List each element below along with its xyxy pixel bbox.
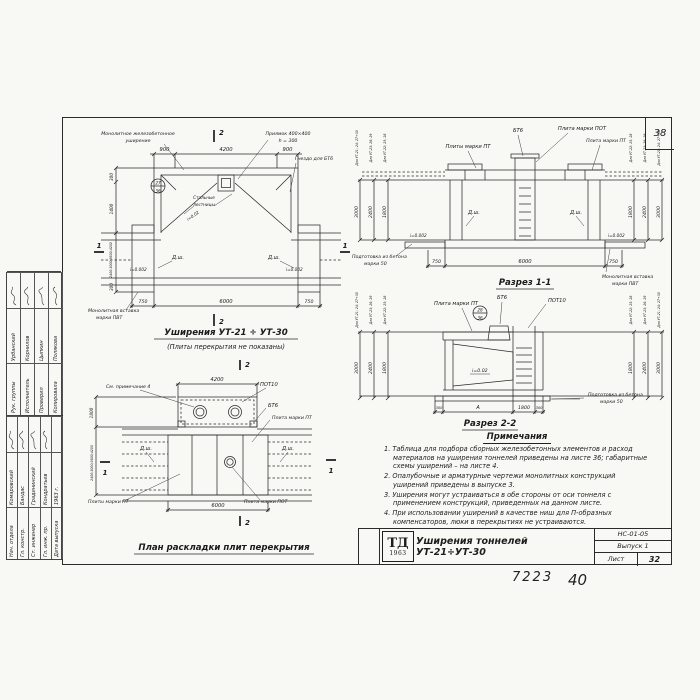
cut-mark-label: 2 [245,519,250,527]
signature-cell [18,416,29,452]
issue-label: Выпуск 1 [595,541,671,553]
signature-icon [30,430,38,450]
joint-label: Д.ш. [281,446,294,452]
slope-label: i=0.002 [410,233,427,238]
name-cell: Урбанский [7,308,21,363]
note-item: 3. Уширения могут устраиваться в обе сто… [384,491,650,508]
detail-mark: 28 [477,308,483,313]
name-cell: Комаровский [7,452,18,507]
signature-cell [7,416,18,452]
sheet-row: Лист 32 [595,553,671,566]
cut-mark-label: 2 [219,129,224,137]
signature-cell [7,272,21,308]
dim-label: 300 [109,173,114,181]
cut-mark-label: 2 [219,318,224,326]
dim-label: 750 [139,299,148,305]
dim-label: А [475,405,480,411]
view-title: План раскладки плит перекрытия [138,543,310,553]
dim-label: 6000 [211,503,225,509]
dim-label: 750 [609,259,618,265]
socket-label: Гнездо для БТ6 [295,156,333,162]
dim-label: 1800 [518,405,530,411]
dim-label: 3000 [354,206,360,218]
title-block-info: НС-01-05 Выпуск 1 Лист 32 [595,529,671,564]
joint-label: Д.ш. [467,210,480,216]
logo-text: ТД [387,537,408,550]
insert-label: марки ПВТ [96,315,123,321]
role-cell: Гл. констр. [18,507,29,559]
bt6-label: БТ6 [513,128,524,134]
plan-widening-drawing: Монолитное железобетонное уширение Приям… [86,120,358,352]
cut-mark-label: 1 [329,467,334,475]
dim-label: 4200 [219,147,233,153]
bt6-label: БТ6 [268,403,279,409]
slope-label: i=0.002 [286,267,303,272]
role-cell: Нач. отдела [7,507,18,559]
dim-label: 2400;3000;3600;4200 [90,445,94,481]
role-cell: Ст. инженер [29,507,40,559]
plate-pt-label: Плита марки ПТ [586,138,627,144]
signature-icon [42,430,50,450]
title-block-spacer [359,529,380,564]
notes-block: Примечания 1. Таблица для подбора сборны… [384,432,650,527]
role-cell: Исполнитель [21,363,35,415]
ladders-label: лестницы [192,202,215,207]
detail-mark: 27 [155,181,161,186]
dim-label: 1800 [382,206,388,218]
signature-cell [29,416,40,452]
note-item: 4. При использовании уширений в качестве… [384,509,650,526]
joint-label: Д.ш. [569,210,582,216]
slope-label: i=0.002 [608,233,625,238]
name-cell: Градининский [29,452,40,507]
dim-label: 6000 [518,259,532,265]
handwritten-number: 7223 [512,570,553,585]
signature-stamp: Нач. отдела Комаровский Гл. констр. Банд… [6,272,62,560]
widening-label: Монолитное железобетонное [101,131,175,137]
name-cell: Кондратьев [41,452,52,507]
view-title: Разрез 2-2 [464,419,517,429]
signature-icon [10,286,18,306]
detail-sheet: 36 [155,189,161,194]
stamp-table: Нач. отдела Комаровский Гл. констр. Банд… [6,272,62,560]
role-cell: Проверил [35,363,49,415]
dim-label: 1800 [628,206,634,218]
dim-label: 2400;3000;3600;4200 [109,242,113,278]
group-label: Для УТ-21; 24; 27÷30 [657,292,661,329]
name-cell: Бандас [18,452,29,507]
group-label: Для УТ-21; 24; 27÷30 [355,130,359,167]
pit-label: h = 300 [279,138,298,144]
signature-icon [24,286,32,306]
group-label: Для УТ-23; 26; 29 [643,134,647,164]
dim-label: 300 [109,283,114,291]
signature-icon [8,430,16,450]
name-cell: Полякова [49,308,63,363]
name-cell: Цыпкин [35,308,49,363]
dim-label: 2400 [368,206,374,218]
plates-pt-label: Плиты марки ПТ [88,499,130,505]
section1-linework [358,133,664,289]
note-item: 1. Таблица для подбора сборных железобет… [384,445,650,471]
group-label: Для УТ-23; 26; 29 [643,296,647,326]
cut-mark-label: 1 [103,469,108,477]
dim-label: 1400 [109,203,114,214]
sheet-number: 32 [638,553,671,566]
signature-cell [41,416,52,452]
dim-label: 1800 [89,407,94,418]
group-label: Для УТ-22; 25; 28 [383,134,387,164]
prep-label: марки 50 [364,261,387,267]
prep-label: марки 50 [600,399,623,405]
role-cell: Гл. инж. пр. [41,507,52,559]
dim-label: 6000 [219,299,233,305]
group-label: Для УТ-22; 25; 28 [629,134,633,164]
dim-label: 750 [305,299,314,305]
dim-label: 300 [536,406,544,410]
joint-label: Д.ш. [139,446,152,452]
dim-label: 900 [283,147,294,153]
stamp-group-approvals: Нач. отдела Комаровский Гл. констр. Банд… [7,415,61,559]
role-cell: Рук. группы [7,363,21,415]
role-cell: Копировала [49,363,63,415]
drawing-title: Уширения тоннелей УТ-21÷УТ-30 [416,529,595,564]
dim-label: 3000 [656,362,662,374]
dim-label: 1800 [628,362,634,374]
plates-pt-label: Плиты марки ПТ [446,144,492,150]
slab-layout-plan-drawing: См. примечание 4 ПОТ10 БТ6 Плита марки П… [82,350,367,562]
plate-pt-label: Плита марки ПТ [272,415,313,421]
document-code: НС-01-05 [595,529,671,541]
group-label: Для УТ-23; 26; 29 [369,134,373,164]
section2-linework [358,302,664,430]
signature-cell [21,272,35,308]
view-title: Уширения УТ-21 ÷ УТ-30 [164,328,287,338]
dim-label: 2400 [642,206,648,218]
logo-year: 1963 [389,550,406,557]
stamp-group-authors: Рук. группы Урбанский Исполнитель Корнил… [7,271,61,415]
handwritten-number: 40 [568,571,587,589]
signature-cell [35,272,49,308]
joint-label: Д.ш. [267,255,280,261]
sheet-label: Лист [595,553,638,566]
insert-label: Монолитная вставка [602,274,653,280]
widening-label: уширение [125,139,151,144]
group-label: Для УТ-21; 24; 27÷30 [355,292,359,329]
bt6-label: БТ6 [497,295,508,301]
slope-label: i=0.02 [186,210,201,222]
ladders-label: Стальные [193,195,215,200]
signature-icon [19,430,27,450]
detail-sheet: 36 [477,316,483,321]
name-cell: Корнилов [21,308,35,363]
prep-label: Подготовка из бетона [588,392,643,398]
role-cell: Дата выпуска [52,507,63,559]
dim-label: 3000 [656,206,662,218]
pit-label: Приямок 400×400 [266,131,311,137]
signature-cell [49,272,63,308]
pot10-label: ПОТ10 [260,382,278,388]
dim-label: 2400 [642,362,648,374]
group-label: Для УТ-21; 24; 27÷30 [657,130,661,167]
name-cell: 1963 г. [52,452,63,507]
cut-mark-label: 2 [245,361,250,369]
signature-icon [52,286,60,306]
section-2-2-drawing: Плита марки ПТ БТ6 ПОТ10 28 36 i=0.02 По… [350,286,672,438]
see-note-label: См. примечание 4 [106,384,150,390]
plate-pot-label: Плита марки ПОТ [244,499,289,505]
group-label: Для УТ-22; 25; 28 [629,296,633,326]
group-label: Для УТ-23; 26; 29 [369,296,373,326]
dim-label: 900 [160,147,171,153]
dim-label: 1800 [382,362,388,374]
signature-icon [38,286,46,306]
group-label: Для УТ-22; 25; 28 [383,296,387,326]
notes-title: Примечания [384,432,650,442]
pot10-label: ПОТ10 [548,298,566,304]
joint-label: Д.ш. [171,255,184,261]
slope-label: i=0.02 [472,368,488,374]
slope-label: i=0.002 [130,267,147,272]
title-block: ТД 1963 Уширения тоннелей УТ-21÷УТ-30 НС… [358,528,672,565]
dim-label: 4200 [210,377,224,383]
section-1-1-drawing: Плиты марки ПТ БТ6 Плита марки ПОТ Плита… [350,118,672,290]
plate-pt-label: Плита марки ПТ [434,301,479,307]
plate-pot-label: Плита марки ПОТ [558,126,607,132]
signature-cell [52,416,63,452]
dim-label: 2400 [368,362,374,374]
note-item: 2. Опалубочные и арматурные чертежи моно… [384,472,650,489]
insert-label: Монолитная вставка [88,308,139,314]
cut-mark-label: 1 [343,242,348,250]
dim-label: 750 [432,259,441,265]
td-logo: ТД 1963 [382,531,414,562]
cut-mark-label: 1 [97,242,102,250]
dim-label: 300 [436,406,444,410]
drawing-sheet: 38 Монолитное железобетонное уширение Пр… [0,0,700,700]
prep-label: Подготовка из бетона [352,254,407,260]
